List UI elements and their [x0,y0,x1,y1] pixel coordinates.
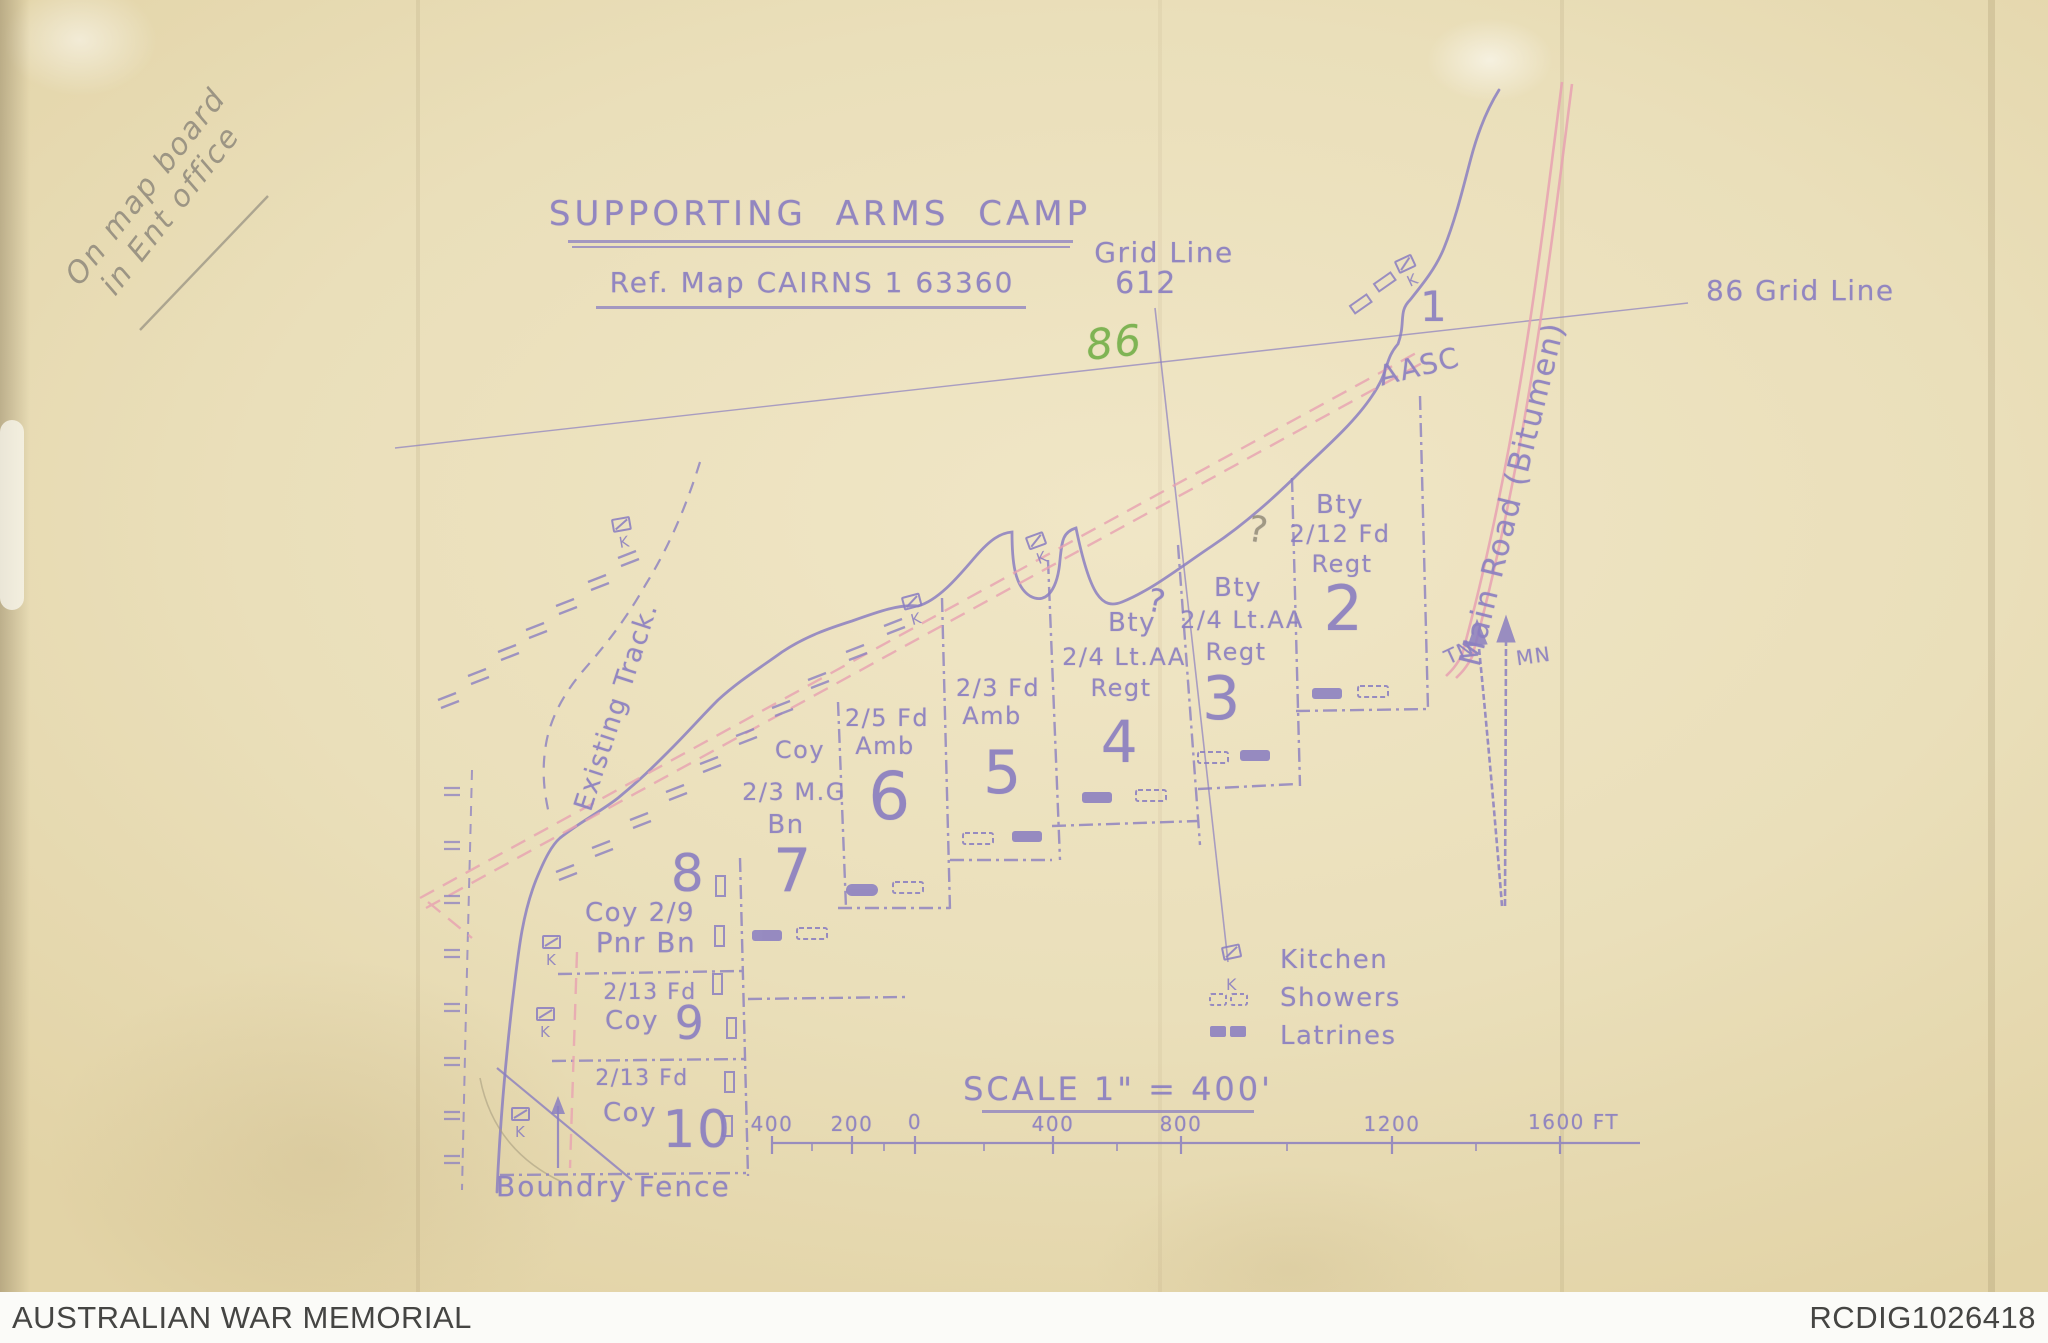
camp-block-label: Regt [1205,638,1266,666]
camp-block-label: Amb [962,702,1022,730]
scale-tick-label: 800 [1160,1112,1203,1136]
scale-end-label: 1600 FT [1528,1110,1619,1134]
title-underline [568,240,1073,243]
camp-block-label: 2/12 Fd [1289,520,1390,548]
reference-underline [596,306,1026,309]
gate-pole-arrowhead [551,1096,565,1114]
camp-block-number: 10 [662,1100,731,1160]
camp-block-number: 8 [671,844,706,904]
scale-tick-label: 0 [908,1110,922,1134]
grid-line-612-label: Grid Line [1094,236,1234,269]
svg-text:K: K [515,1123,526,1141]
grid-line-612-number: 612 [1115,266,1177,301]
camp-block-label: Coy 2/9 [585,898,695,928]
camp-block-label: Coy [605,1006,659,1036]
legend-latrines-label: Latrines [1280,1021,1397,1051]
scale-tick-label: 400 [1032,1112,1075,1136]
scale-tick-label: 400 [751,1112,794,1136]
map-reference: Ref. Map CAIRNS 1 63360 [610,266,1015,299]
svg-text:K: K [540,1023,551,1041]
grid-86-green-annotation: 86 [1084,315,1145,370]
page-title: SUPPORTING ARMS CAMP [549,194,1091,234]
aasc-number: 1 [1420,282,1448,331]
camp-block-number: 5 [983,738,1023,808]
fence-hash-marks [444,788,460,1163]
scanned-map-page: K K K K K K K [0,0,2048,1343]
legend-kitchen-label: Kitchen [1280,945,1388,975]
camp-block-label: 2/13 Fd [595,1066,689,1091]
grid-line-86-label: 86 Grid Line [1706,274,1895,307]
camp-block-label: 2/4 Lt.AA [1062,643,1186,671]
legend-kitchen-k: K [1226,975,1237,994]
boundary-fence-label: Boundry Fence [496,1170,731,1203]
scale-tick-label: 200 [831,1112,874,1136]
camp-block-number: 6 [868,758,912,835]
road-hash-marks [438,551,905,880]
block-dividers [500,396,1428,1176]
magnetic-north-label: MN [1515,642,1553,671]
camp-block-label: 2/3 Fd [956,674,1040,702]
legend-symbols: K [1210,944,1247,1037]
camp-block-label: Amb [855,732,915,760]
footer-source: AUSTRALIAN WAR MEMORIAL [0,1300,484,1336]
camp-block-label: Bty [1214,573,1262,603]
svg-text:K: K [1034,547,1050,568]
grid-line-86 [395,303,1688,448]
boundary-fence-line [462,770,472,1190]
camp-block-label: 2/5 Fd [845,704,929,732]
camp-block-label: Coy [775,736,825,764]
camp-block-label: Pnr Bn [596,926,697,959]
grid-line-612 [1155,308,1228,962]
footer-bar: AUSTRALIAN WAR MEMORIAL RCDIG1026418 [0,1292,2048,1343]
camp-block-label: 2/4 Lt.AA [1180,606,1304,634]
camp-road-dashed [420,352,1424,1168]
camp-block-number: 7 [773,836,813,906]
svg-text:K: K [909,609,924,629]
camp-block-number: 9 [675,996,706,1050]
camp-block-label: Bty [1108,608,1156,638]
kitchen-k: K [618,532,632,552]
scale-tick-label: 1200 [1364,1112,1421,1136]
scale-title: SCALE 1" = 400' [963,1070,1273,1108]
title-underline-2 [572,246,1070,248]
legend-showers-label: Showers [1280,983,1401,1013]
scale-underline [982,1110,1254,1113]
camp-block-number: 4 [1101,708,1139,776]
camp-block-label: 2/3 M.G [742,778,846,806]
camp-block-number: 3 [1202,664,1242,734]
footer-id: RCDIG1026418 [1797,1300,2048,1336]
camp-block-number: 2 [1324,572,1365,645]
svg-text:K: K [546,951,557,969]
camp-block-label: Coy [603,1098,657,1128]
camp-block-label: Regt [1090,674,1151,702]
scale-bar [772,1136,1640,1154]
camp-block-label: Bty [1316,490,1364,520]
